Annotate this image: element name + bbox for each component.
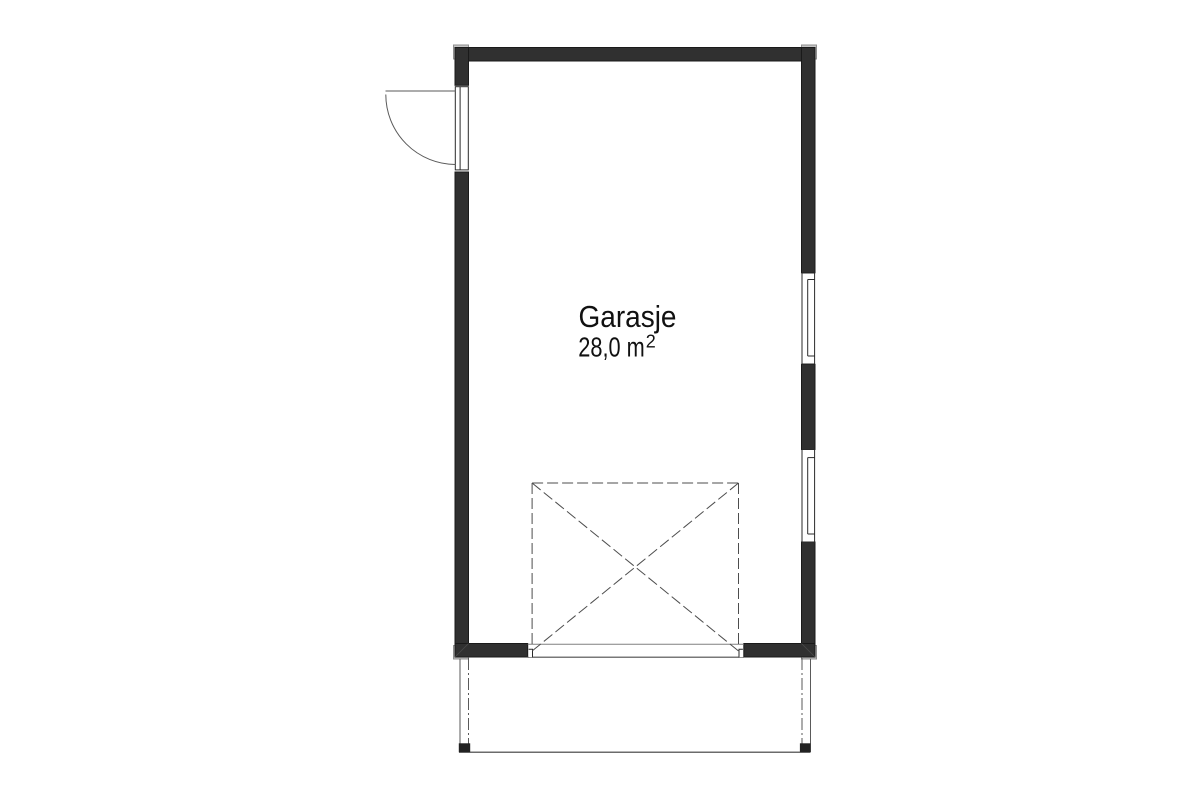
svg-text:Garasje: Garasje <box>579 299 677 334</box>
svg-text:2: 2 <box>646 332 656 352</box>
svg-text:28,0 m: 28,0 m <box>578 332 645 363</box>
